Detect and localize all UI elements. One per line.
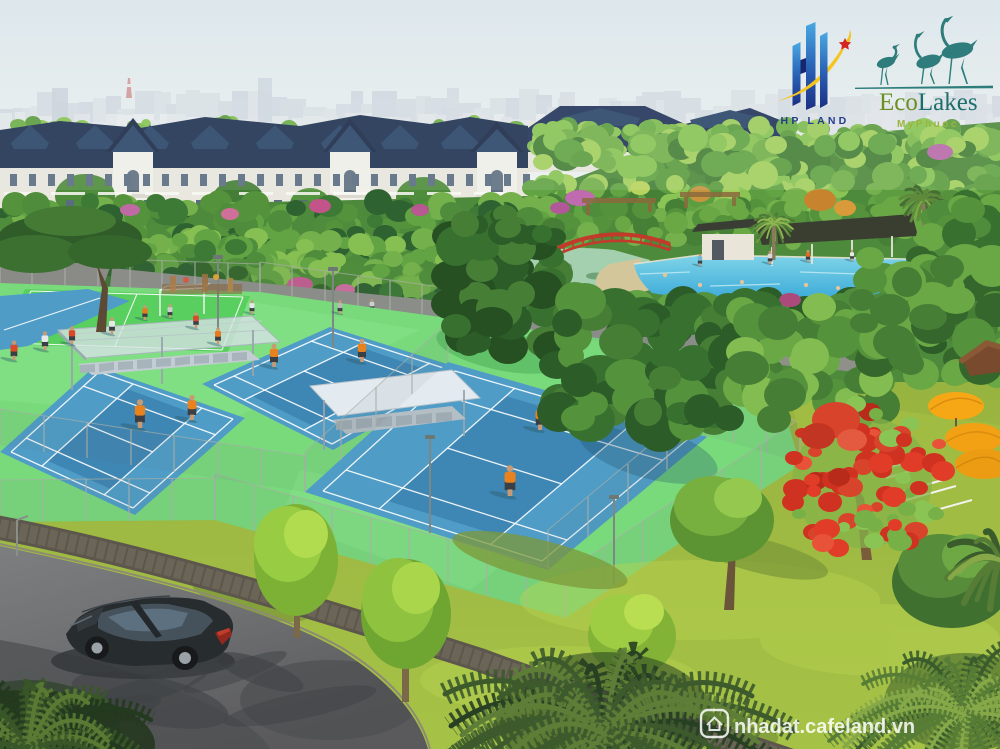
svg-text:EcoLakes: EcoLakes — [879, 89, 978, 116]
svg-text:nhadat.cafeland.vn: nhadat.cafeland.vn — [734, 716, 915, 738]
svg-text:HP LAND: HP LAND — [781, 115, 850, 127]
svg-text:MyPhuoc: MyPhuoc — [897, 119, 959, 130]
